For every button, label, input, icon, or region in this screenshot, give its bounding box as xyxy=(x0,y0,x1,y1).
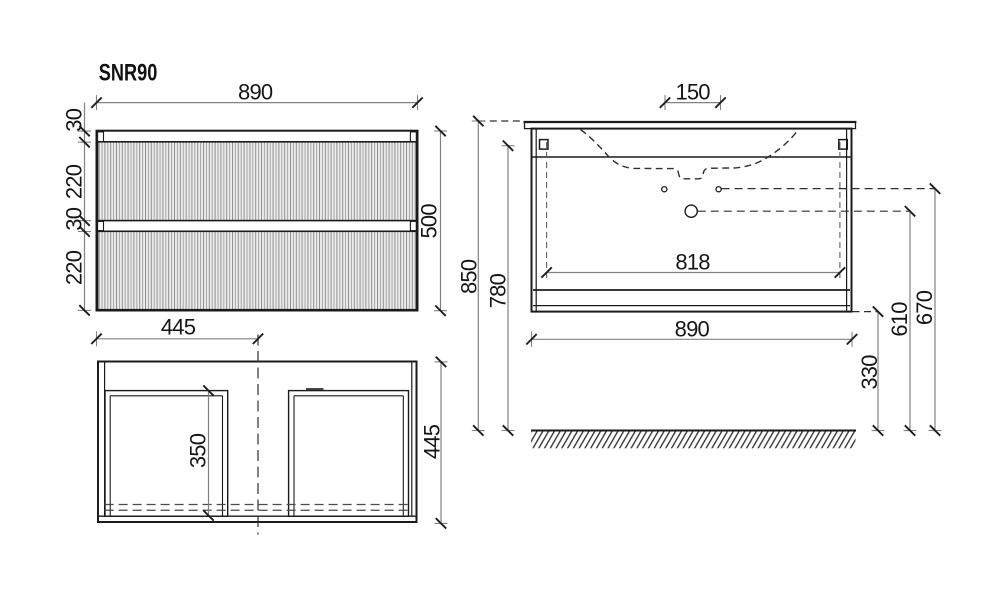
svg-text:445: 445 xyxy=(419,424,444,459)
svg-text:30: 30 xyxy=(62,207,87,230)
svg-text:150: 150 xyxy=(675,80,710,105)
svg-text:670: 670 xyxy=(912,290,937,325)
svg-text:220: 220 xyxy=(62,164,87,199)
svg-text:445: 445 xyxy=(161,315,196,340)
svg-text:850: 850 xyxy=(457,259,482,294)
svg-text:780: 780 xyxy=(486,273,511,308)
svg-text:220: 220 xyxy=(62,250,87,285)
svg-text:610: 610 xyxy=(887,302,912,337)
svg-text:30: 30 xyxy=(62,108,87,131)
svg-text:SNR90: SNR90 xyxy=(99,59,158,86)
svg-text:818: 818 xyxy=(675,249,710,274)
svg-text:890: 890 xyxy=(238,80,273,105)
svg-text:500: 500 xyxy=(417,204,442,239)
svg-text:890: 890 xyxy=(675,316,710,341)
svg-text:330: 330 xyxy=(857,355,882,390)
svg-text:350: 350 xyxy=(185,433,210,468)
